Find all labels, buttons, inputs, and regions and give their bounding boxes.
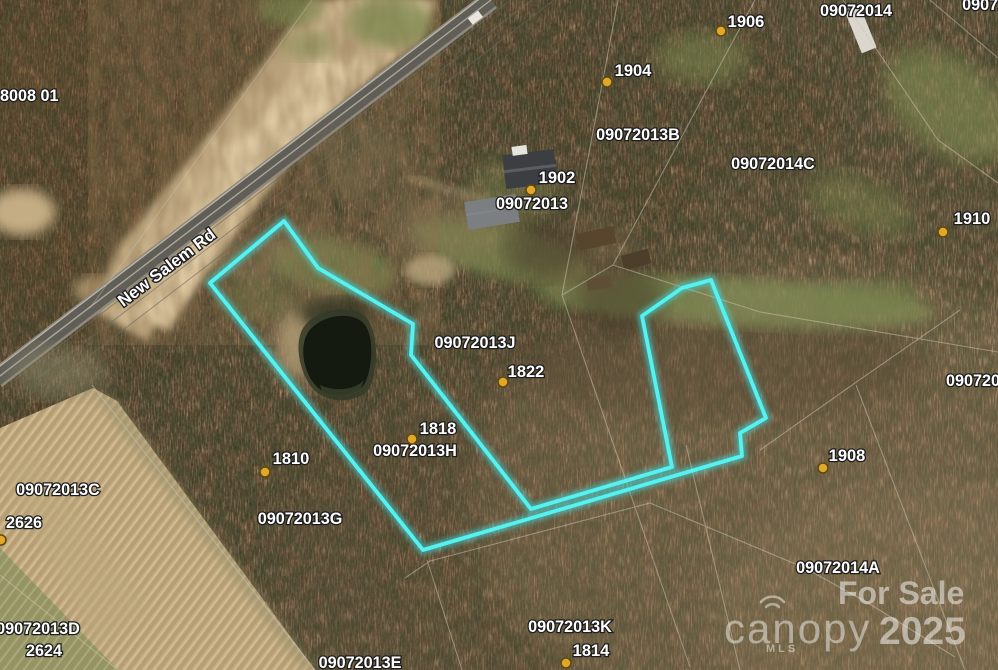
svg-text:1810: 1810 [273,450,310,468]
svg-text:09072013K: 09072013K [528,618,612,636]
svg-text:09072014: 09072014 [820,2,892,20]
svg-text:09072E: 09072E [962,0,998,14]
svg-text:MLS: MLS [766,643,798,655]
svg-text:2626: 2626 [6,514,42,532]
svg-text:09072013E: 09072013E [319,654,402,670]
svg-text:1910: 1910 [954,210,991,228]
svg-text:09072013B: 09072013B [596,126,680,144]
svg-text:09072014C: 09072014C [731,155,815,173]
svg-text:8008 01: 8008 01 [0,87,59,105]
svg-text:09072013J: 09072013J [434,334,515,352]
svg-text:09072013: 09072013 [496,195,568,213]
svg-text:1822: 1822 [508,363,545,381]
svg-text:2025: 2025 [879,610,966,653]
svg-text:09072013C: 09072013C [16,481,100,499]
svg-text:09072013H: 09072013H [373,442,457,460]
svg-text:1904: 1904 [615,62,653,80]
svg-text:09072013G: 09072013G [258,510,343,528]
svg-text:0907201: 0907201 [946,372,998,390]
svg-text:2624: 2624 [26,642,62,660]
svg-text:1818: 1818 [420,420,457,438]
svg-text:1902: 1902 [539,169,576,187]
svg-text:1906: 1906 [728,13,765,31]
svg-text:1908: 1908 [829,447,866,465]
svg-text:1814: 1814 [573,642,611,660]
svg-text:09072013D: 09072013D [0,620,80,638]
